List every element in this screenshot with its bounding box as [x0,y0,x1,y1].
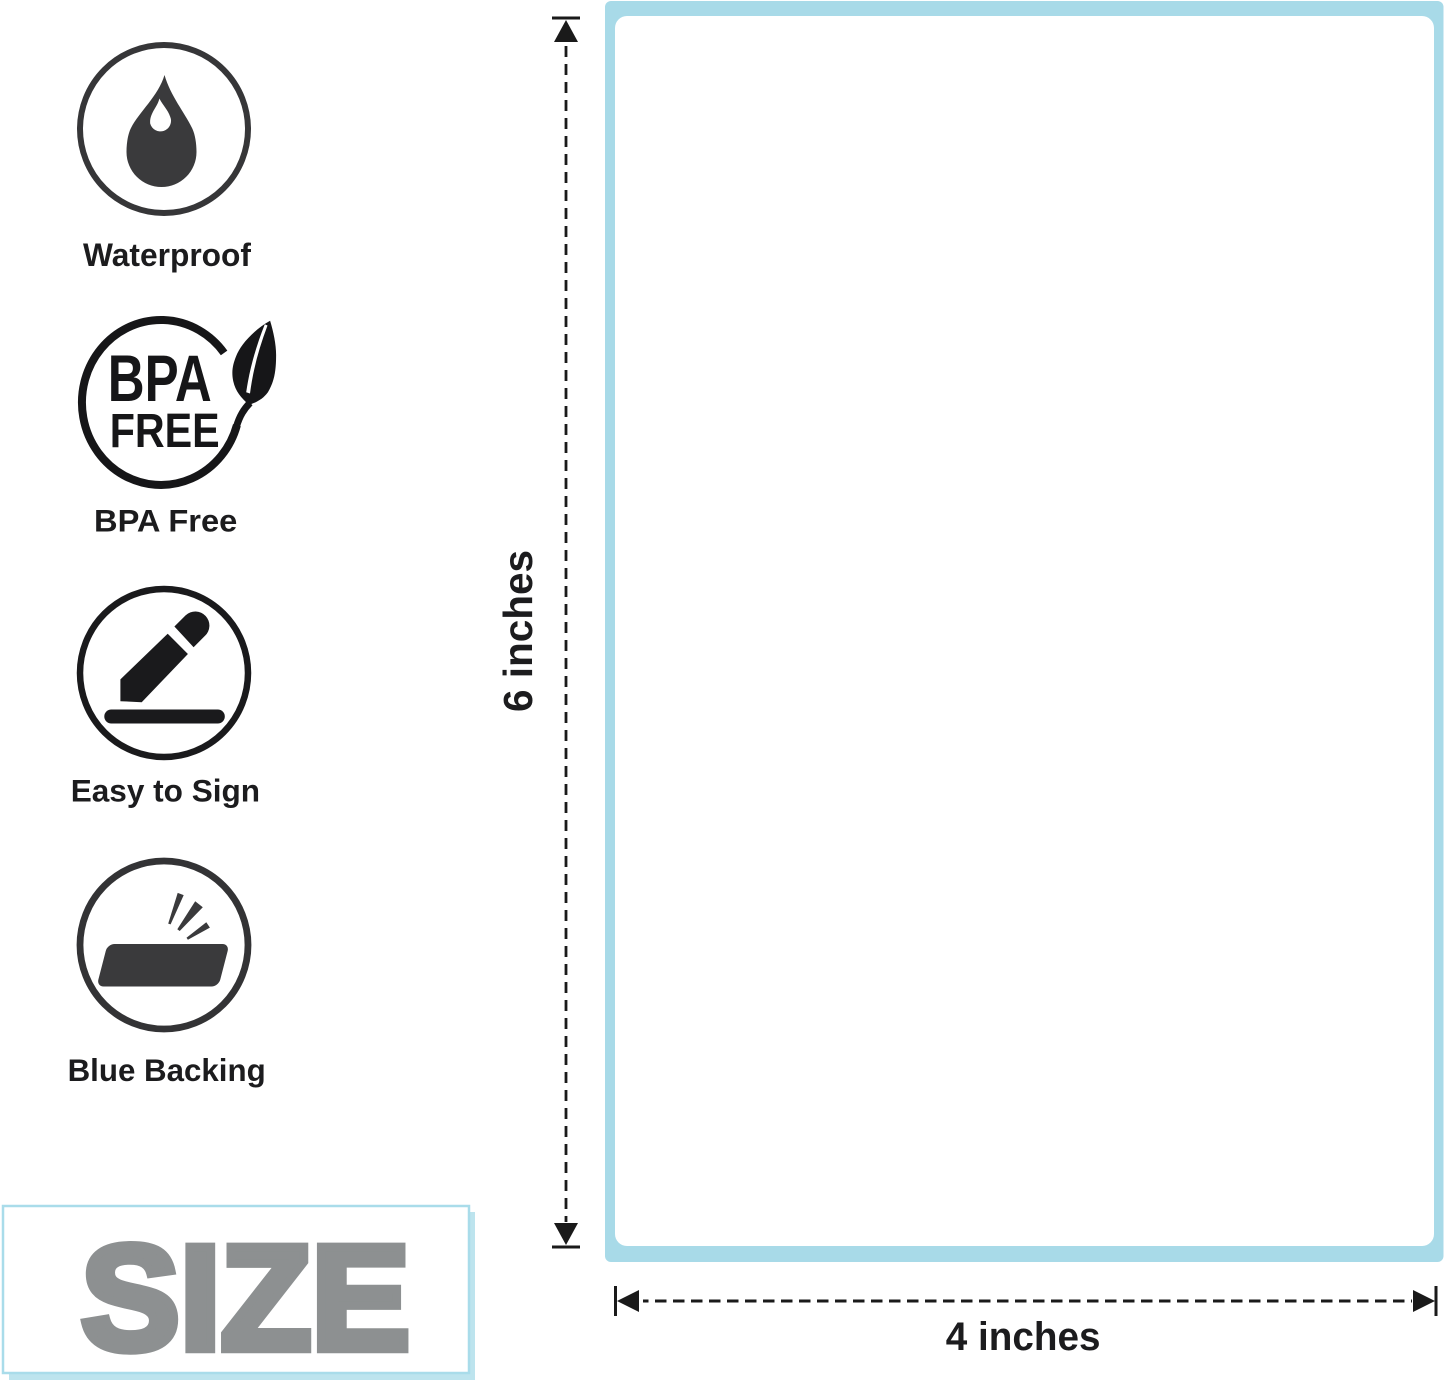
svg-text:FREE: FREE [110,405,220,458]
svg-text:BPA Free: BPA Free [94,503,237,539]
svg-text:Easy to Sign: Easy to Sign [71,773,260,809]
svg-text:6 inches: 6 inches [495,550,541,712]
svg-text:Blue Backing: Blue Backing [68,1052,266,1088]
svg-text:SIZE: SIZE [81,1216,410,1381]
svg-text:4 inches: 4 inches [946,1315,1101,1359]
svg-text:Waterproof: Waterproof [83,236,251,273]
